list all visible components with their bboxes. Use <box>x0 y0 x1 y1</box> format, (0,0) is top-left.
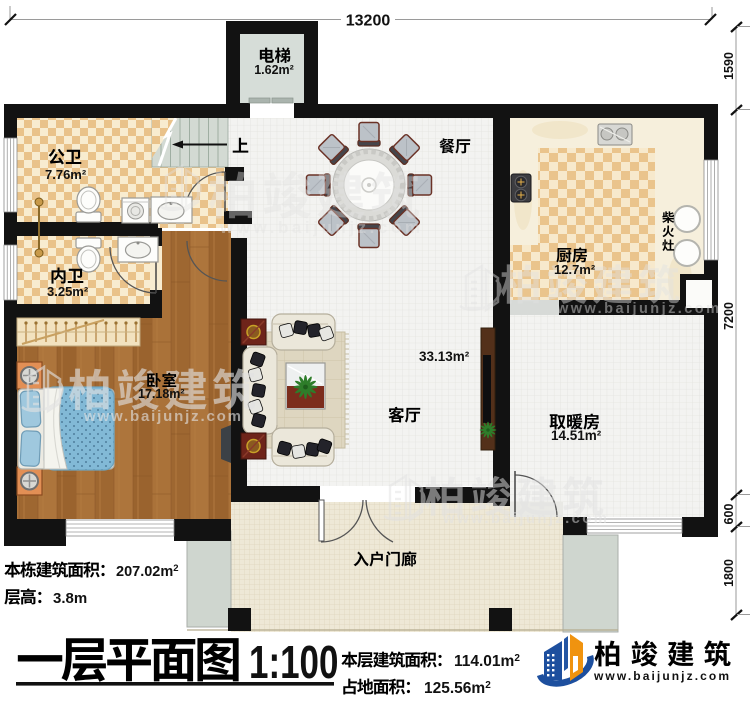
svg-text:600: 600 <box>722 504 736 525</box>
svg-text:3.8m: 3.8m <box>53 590 87 607</box>
svg-text:1590: 1590 <box>722 52 736 80</box>
svg-text:207.02m2: 207.02m2 <box>116 563 179 580</box>
svg-text:14.51m²: 14.51m² <box>551 428 602 443</box>
svg-text:3.25m²: 3.25m² <box>47 284 89 299</box>
svg-text:17.18m²: 17.18m² <box>138 387 185 401</box>
svg-text:12.7m²: 12.7m² <box>554 262 596 277</box>
svg-text:1:100: 1:100 <box>249 636 338 688</box>
svg-text:1800: 1800 <box>722 559 736 587</box>
svg-text:7200: 7200 <box>722 302 736 330</box>
svg-text:7.76m²: 7.76m² <box>45 167 87 182</box>
svg-text:www.baijunjz.com: www.baijunjz.com <box>593 669 730 683</box>
svg-text:1.62m²: 1.62m² <box>254 63 294 77</box>
svg-text:33.13m²: 33.13m² <box>419 349 470 364</box>
svg-text:125.56m2: 125.56m2 <box>424 680 491 697</box>
svg-text:114.01m2: 114.01m2 <box>454 653 520 670</box>
svg-text:13200: 13200 <box>346 13 391 30</box>
